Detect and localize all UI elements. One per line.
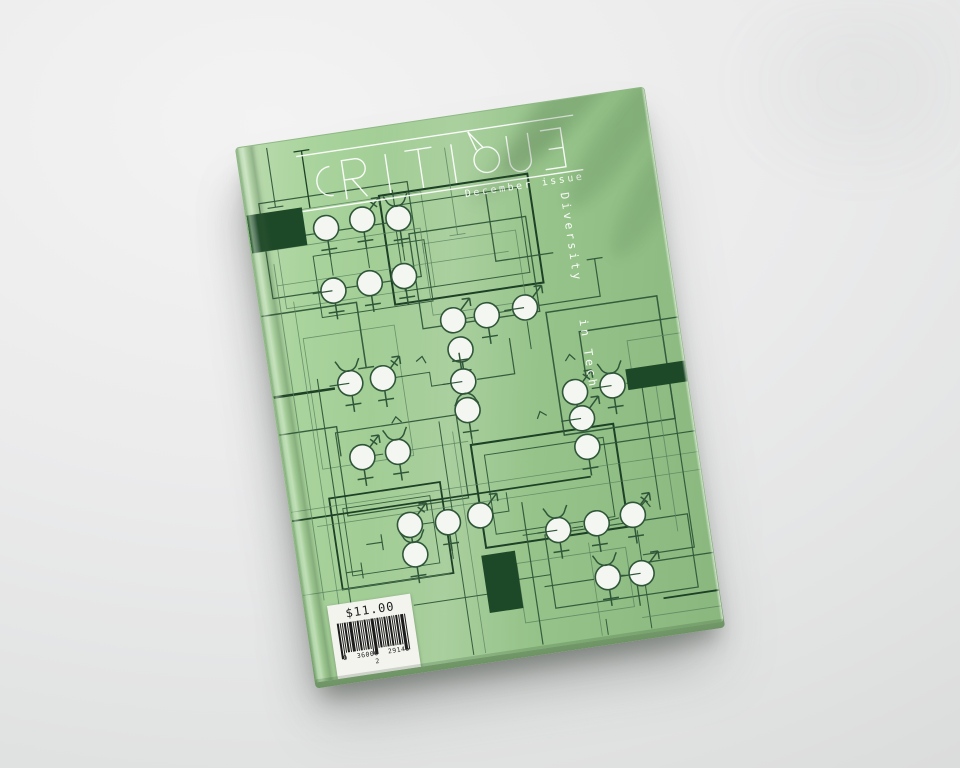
gender-symbol-female [453,396,484,441]
gender-symbol-trans [347,435,386,488]
gender-symbol-male [438,298,474,334]
gender-symbol-trans [368,356,407,409]
gender-symbol-female [473,301,504,346]
gender-symbol-male [618,551,663,589]
gender-symbol-mercury [382,427,414,483]
gender-symbol-male [465,493,501,529]
wall-shadow [620,0,960,280]
gender-symbol-mercury [534,505,575,562]
gender-symbol-mercury [326,358,367,415]
gender-symbol-female [583,509,614,554]
studio-backdrop: December issue Diversity in Tech $11.00 … [0,0,960,768]
gender-symbol-female [573,433,604,478]
gender-symbol-female [356,269,387,314]
magazine-cover: December issue Diversity in Tech $11.00 … [236,88,723,683]
barcode-label: $11.00 0 36000 29145 2 [327,594,421,680]
